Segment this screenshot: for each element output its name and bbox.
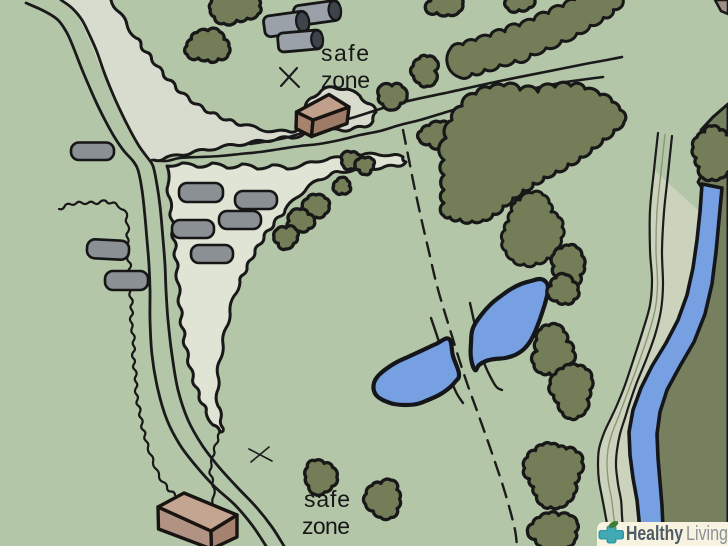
svg-text:zone: zone (321, 67, 370, 93)
svg-text:Living: Living (686, 523, 728, 545)
svg-text:safe: safe (304, 486, 350, 512)
svg-text:Healthy: Healthy (626, 523, 684, 545)
svg-text:safe: safe (321, 40, 369, 66)
svg-text:zone: zone (302, 513, 350, 539)
